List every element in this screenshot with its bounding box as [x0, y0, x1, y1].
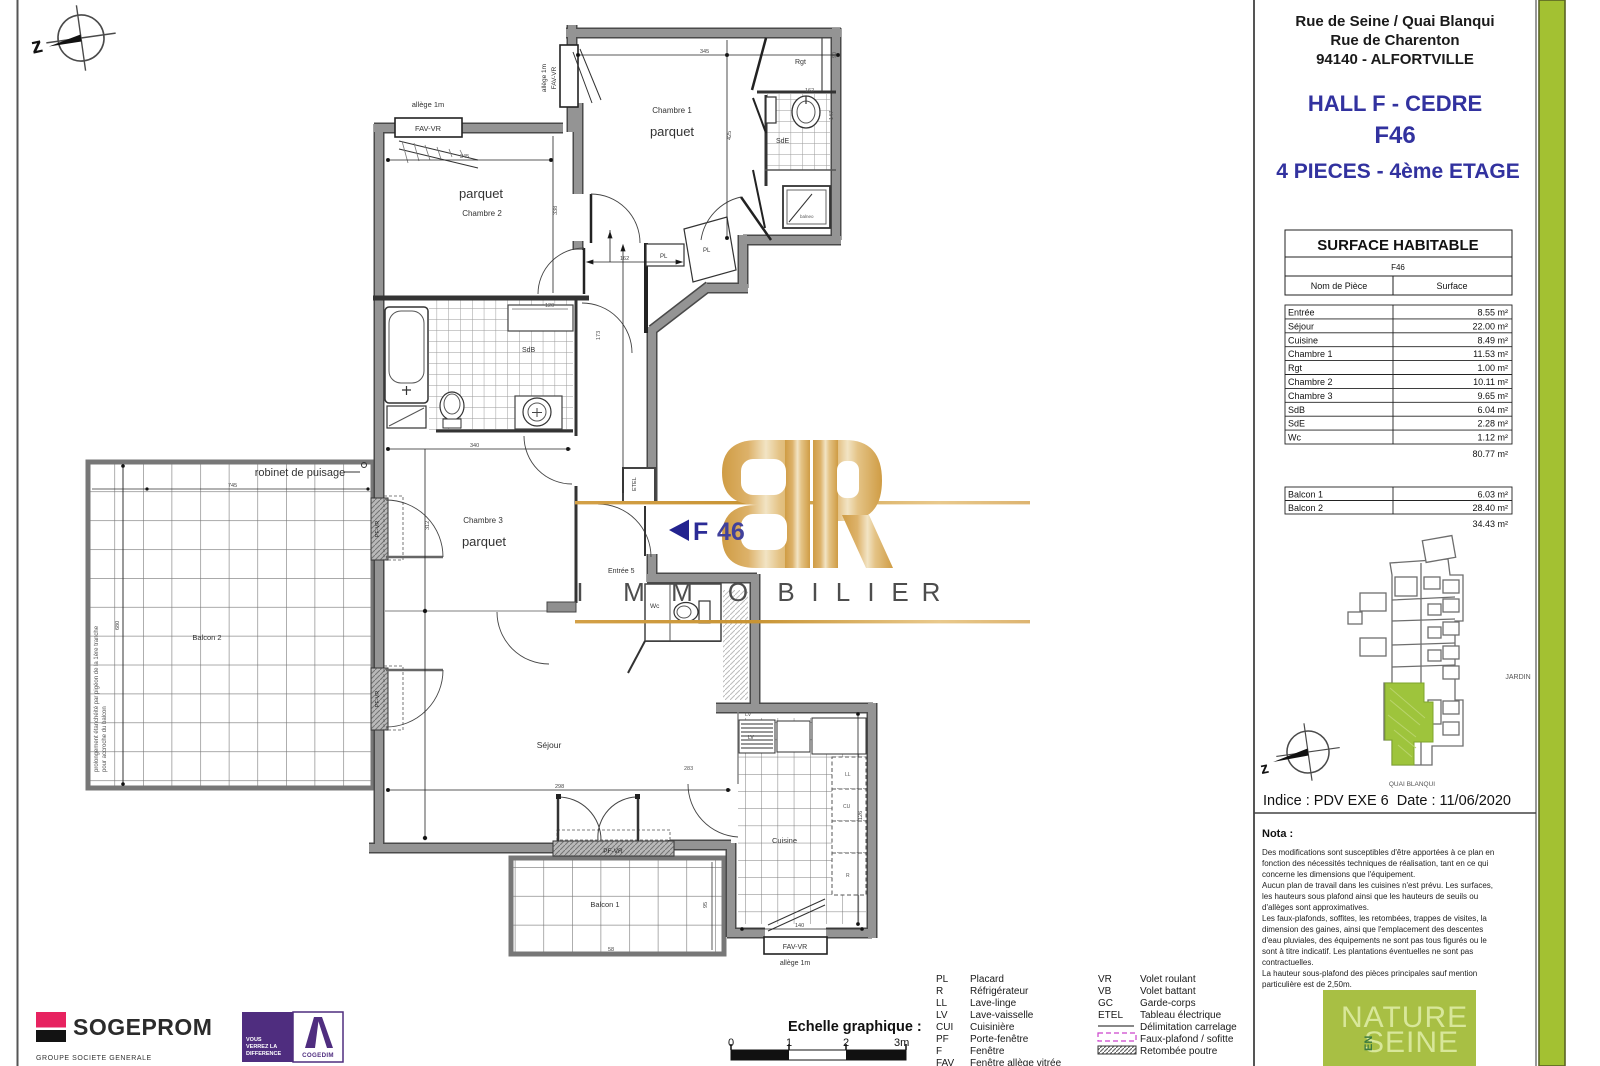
- svg-text:PF-VR: PF-VR: [375, 521, 381, 538]
- svg-text:Lave-vaisselle: Lave-vaisselle: [970, 1010, 1034, 1021]
- svg-text:Réfrigérateur: Réfrigérateur: [970, 986, 1029, 997]
- svg-text:Chambre 2: Chambre 2: [462, 209, 502, 218]
- svg-text:1.12 m²: 1.12 m²: [1477, 433, 1508, 443]
- svg-text:140: 140: [795, 923, 804, 929]
- svg-text:M: M: [623, 577, 645, 607]
- svg-text:GROUPE SOCIETE GENERALE: GROUPE SOCIETE GENERALE: [36, 1055, 152, 1062]
- svg-text:Fenêtre: Fenêtre: [970, 1046, 1005, 1057]
- svg-text:Chambre 3: Chambre 3: [463, 516, 503, 525]
- svg-text:CU: CU: [843, 804, 851, 810]
- svg-text:90: 90: [832, 52, 838, 58]
- svg-text:34.43 m²: 34.43 m²: [1472, 519, 1508, 529]
- svg-text:concerne les dimensions que l': concerne les dimensions que l'équipement…: [1262, 870, 1415, 879]
- svg-text:345: 345: [460, 154, 469, 160]
- svg-text:R: R: [922, 577, 941, 607]
- svg-text:d'eau pluviales, des équipemen: d'eau pluviales, des équipements ne sont…: [1262, 936, 1487, 945]
- svg-text:Aucun plan de travail dans les: Aucun plan de travail dans les cuisines …: [1262, 881, 1493, 890]
- svg-text:DIFFERENCE: DIFFERENCE: [246, 1051, 281, 1057]
- svg-text:SdE: SdE: [1288, 419, 1305, 429]
- svg-text:Lave-linge: Lave-linge: [970, 998, 1017, 1009]
- svg-text:4 PIECES - 4ème ETAGE: 4 PIECES - 4ème ETAGE: [1276, 160, 1520, 183]
- svg-text:10.11 m²: 10.11 m²: [1473, 377, 1508, 387]
- svg-text:11.53 m²: 11.53 m²: [1473, 349, 1508, 359]
- svg-text:Garde-corps: Garde-corps: [1140, 998, 1196, 1009]
- svg-text:SURFACE HABITABLE: SURFACE HABITABLE: [1317, 237, 1478, 254]
- svg-text:Entrée 5: Entrée 5: [608, 568, 635, 575]
- svg-text:SEINE: SEINE: [1364, 1026, 1459, 1059]
- svg-text:Wc: Wc: [650, 603, 660, 610]
- svg-text:La hauteur sous-plafond des pi: La hauteur sous-plafond des pièces princ…: [1262, 969, 1477, 978]
- svg-text:ETEL: ETEL: [632, 477, 638, 491]
- svg-text:80.77 m²: 80.77 m²: [1472, 449, 1508, 459]
- svg-text:162: 162: [805, 88, 814, 94]
- svg-text:COGEDIM: COGEDIM: [302, 1052, 334, 1059]
- svg-text:Chambre 3: Chambre 3: [1288, 391, 1333, 401]
- svg-text:28.40 m²: 28.40 m²: [1472, 503, 1508, 513]
- svg-text:HALL F - CEDRE: HALL F - CEDRE: [1308, 91, 1482, 116]
- svg-text:PL: PL: [703, 248, 711, 254]
- svg-text:ETEL: ETEL: [1098, 1010, 1123, 1021]
- svg-text:Séjour: Séjour: [537, 740, 562, 750]
- svg-text:162: 162: [620, 256, 629, 262]
- svg-text:Rgt: Rgt: [1288, 363, 1303, 373]
- svg-text:338: 338: [553, 206, 559, 215]
- svg-text:F: F: [936, 1046, 942, 1057]
- svg-text:120: 120: [545, 303, 554, 309]
- svg-text:FAV-VR: FAV-VR: [415, 124, 442, 133]
- svg-text:Surface: Surface: [1436, 281, 1467, 291]
- svg-text:3m: 3m: [894, 1037, 909, 1049]
- svg-text:Volet roulant: Volet roulant: [1140, 974, 1196, 985]
- svg-text:I: I: [811, 577, 818, 607]
- svg-text:parquet: parquet: [462, 534, 506, 549]
- svg-text:Les faux-plafonds, soffites, l: Les faux-plafonds, soffites, les retombé…: [1262, 914, 1487, 923]
- svg-text:Volet battant: Volet battant: [1140, 986, 1196, 997]
- svg-text:fonction des nécessités techni: fonction des nécessités techniques de ré…: [1262, 859, 1489, 868]
- svg-text:particulière est de 2,50m.: particulière est de 2,50m.: [1262, 980, 1352, 989]
- svg-text:SdE: SdE: [776, 138, 790, 145]
- svg-text:Faux-plafond / sofitte: Faux-plafond / sofitte: [1140, 1034, 1234, 1045]
- svg-text:L: L: [836, 577, 850, 607]
- svg-text:Rue de Seine / Quai Blanqui: Rue de Seine / Quai Blanqui: [1295, 13, 1494, 30]
- svg-text:GC: GC: [1098, 998, 1113, 1009]
- svg-text:PF-VR: PF-VR: [375, 691, 381, 708]
- svg-text:R: R: [846, 873, 850, 879]
- svg-text:allège 1m: allège 1m: [541, 64, 548, 92]
- svg-text:Chambre 1: Chambre 1: [652, 106, 692, 115]
- svg-text:126: 126: [858, 811, 864, 820]
- svg-text:22.00 m²: 22.00 m²: [1472, 321, 1508, 331]
- svg-text:745: 745: [228, 483, 237, 489]
- svg-text:Balcon 1: Balcon 1: [590, 900, 619, 909]
- svg-text:PL: PL: [660, 254, 668, 260]
- svg-text:9.65 m²: 9.65 m²: [1477, 391, 1508, 401]
- svg-text:8.49 m²: 8.49 m²: [1477, 335, 1508, 345]
- svg-text:VERREZ LA: VERREZ LA: [246, 1044, 277, 1050]
- svg-text:LV: LV: [748, 735, 754, 741]
- svg-text:312: 312: [425, 521, 431, 530]
- svg-text:345: 345: [700, 49, 709, 55]
- svg-text:dimension des gaines, ainsi qu: dimension des gaines, ainsi que l'emplac…: [1262, 925, 1483, 934]
- svg-text:Echelle graphique :: Echelle graphique :: [788, 1019, 922, 1035]
- svg-text:Nom de Pièce: Nom de Pièce: [1311, 281, 1368, 291]
- svg-text:I: I: [867, 577, 874, 607]
- svg-text:robinet de puisage: robinet de puisage: [255, 467, 346, 479]
- svg-text:Tableau électrique: Tableau électrique: [1140, 1010, 1222, 1021]
- svg-text:parquet: parquet: [650, 124, 694, 139]
- svg-text:d'allèges sont approximatives.: d'allèges sont approximatives.: [1262, 903, 1369, 912]
- svg-text:LL: LL: [845, 772, 851, 778]
- svg-text:SdB: SdB: [522, 347, 536, 354]
- svg-text:LV: LV: [936, 1010, 948, 1021]
- svg-text:E: E: [891, 577, 908, 607]
- svg-text:allège 1m: allège 1m: [412, 100, 445, 109]
- svg-text:allège 1m: allège 1m: [780, 960, 811, 967]
- svg-text:Balcon 2: Balcon 2: [1288, 503, 1323, 513]
- svg-text:FAV: FAV: [936, 1058, 954, 1066]
- svg-text:Rgt: Rgt: [795, 59, 806, 66]
- svg-text:Cuisinière: Cuisinière: [970, 1022, 1015, 1033]
- svg-text:Chambre 2: Chambre 2: [1288, 377, 1333, 387]
- svg-text:Chambre 1: Chambre 1: [1288, 349, 1333, 359]
- svg-text:LL: LL: [936, 998, 948, 1009]
- svg-text:Porte-fenêtre: Porte-fenêtre: [970, 1034, 1029, 1045]
- svg-text:SOGEPROM: SOGEPROM: [73, 1014, 212, 1040]
- svg-text:Balcon 1: Balcon 1: [1288, 490, 1323, 500]
- svg-text:SdB: SdB: [1288, 405, 1305, 415]
- svg-text:O: O: [728, 577, 748, 607]
- svg-text:VOUS: VOUS: [246, 1037, 262, 1043]
- svg-text:6.03 m²: 6.03 m²: [1477, 490, 1508, 500]
- svg-text:CUI: CUI: [936, 1022, 953, 1033]
- svg-text:contractuelles.: contractuelles.: [1262, 958, 1314, 967]
- svg-text:Wc: Wc: [1288, 433, 1301, 443]
- svg-text:58: 58: [608, 947, 614, 953]
- svg-text:JARDIN: JARDIN: [1505, 674, 1530, 681]
- svg-text:Des modifications sont suscept: Des modifications sont susceptibles d'êt…: [1262, 848, 1494, 857]
- svg-text:parquet: parquet: [459, 186, 503, 201]
- svg-text:F46: F46: [1391, 263, 1405, 272]
- svg-text:QUAI BLANQUI: QUAI BLANQUI: [1389, 781, 1435, 788]
- svg-text:FAV-VR: FAV-VR: [551, 66, 558, 89]
- svg-text:balneo: balneo: [800, 214, 814, 219]
- svg-text:EN: EN: [1363, 1036, 1375, 1051]
- svg-text:Entrée: Entrée: [1288, 308, 1315, 318]
- svg-text:Cuisine: Cuisine: [772, 836, 797, 845]
- svg-text:pour accroche du balcon: pour accroche du balcon: [102, 706, 108, 772]
- svg-text:680: 680: [115, 621, 121, 630]
- svg-text:95: 95: [703, 902, 709, 908]
- svg-text:les hauteurs sous plafond ains: les hauteurs sous plafond ainsi que les …: [1262, 892, 1478, 901]
- svg-text:Fenêtre allège vitrée: Fenêtre allège vitrée: [970, 1058, 1062, 1066]
- svg-text:340: 340: [470, 443, 479, 449]
- svg-text:PF: PF: [936, 1034, 949, 1045]
- svg-text:425: 425: [727, 131, 733, 140]
- svg-text:173: 173: [596, 331, 602, 340]
- svg-text:PF-VR: PF-VR: [603, 848, 623, 855]
- svg-text:F46: F46: [1374, 122, 1415, 149]
- svg-text:prolongement étanchéité par pi: prolongement étanchéité par pigéon de la…: [94, 625, 100, 772]
- svg-text:FAV-VR: FAV-VR: [783, 944, 807, 951]
- svg-text:M: M: [671, 577, 693, 607]
- svg-text:R: R: [936, 986, 943, 997]
- svg-text:VB: VB: [1098, 986, 1112, 997]
- svg-text:1.00 m²: 1.00 m²: [1477, 363, 1508, 373]
- svg-text:Rue de Charenton: Rue de Charenton: [1330, 32, 1459, 49]
- svg-text:2.28 m²: 2.28 m²: [1477, 419, 1508, 429]
- svg-text:B: B: [777, 577, 794, 607]
- svg-text:F: F: [693, 518, 708, 546]
- svg-text:Délimitation carrelage: Délimitation carrelage: [1140, 1022, 1237, 1033]
- svg-text:Cuisine: Cuisine: [1288, 335, 1318, 345]
- svg-text:Nota :: Nota :: [1262, 828, 1293, 840]
- svg-text:PL: PL: [936, 974, 949, 985]
- svg-text:VR: VR: [1098, 974, 1112, 985]
- svg-text:I: I: [576, 577, 583, 607]
- svg-text:46: 46: [717, 518, 745, 546]
- svg-text:147: 147: [829, 111, 835, 120]
- svg-text:6.04 m²: 6.04 m²: [1477, 405, 1508, 415]
- svg-text:8.55 m²: 8.55 m²: [1477, 308, 1508, 318]
- svg-text:Placard: Placard: [970, 974, 1004, 985]
- svg-text:sont à titre indicatif. Les pl: sont à titre indicatif. Les plantations …: [1262, 947, 1473, 956]
- svg-text:298: 298: [555, 784, 564, 790]
- svg-text:283: 283: [684, 766, 693, 772]
- svg-text:Séjour: Séjour: [1288, 321, 1314, 331]
- svg-text:94140 - ALFORTVILLE: 94140 - ALFORTVILLE: [1316, 51, 1474, 68]
- svg-text:LV: LV: [745, 712, 752, 718]
- svg-text:Balcon 2: Balcon 2: [192, 633, 221, 642]
- svg-text:Indice : PDV EXE 6 Date : 11/: Indice : PDV EXE 6 Date : 11/06/2020: [1263, 793, 1511, 809]
- svg-text:Retombée poutre: Retombée poutre: [1140, 1046, 1218, 1057]
